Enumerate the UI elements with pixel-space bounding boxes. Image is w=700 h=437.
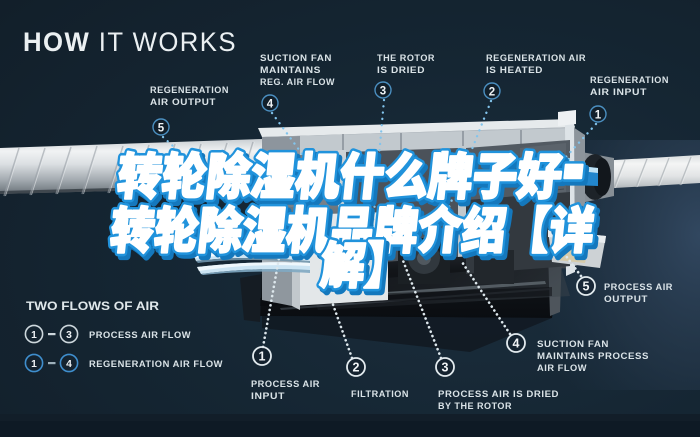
svg-text:3: 3 [442,361,449,375]
svg-text:3: 3 [380,86,386,98]
svg-text:4: 4 [66,359,72,370]
svg-text:BY THE ROTOR: BY THE ROTOR [438,401,512,412]
svg-text:5: 5 [583,280,590,294]
svg-text:1: 1 [595,110,602,122]
svg-text:PROCESS AIR: PROCESS AIR [604,282,673,293]
svg-text:FILTRATION: FILTRATION [351,389,409,400]
svg-text:HOW IT WORKS: HOW IT WORKS [23,27,237,57]
svg-text:REGENERATION: REGENERATION [150,85,229,96]
svg-text:IS DRIED: IS DRIED [377,65,425,76]
svg-text:3: 3 [66,330,72,341]
svg-text:SUCTION FAN: SUCTION FAN [537,339,609,350]
svg-text:4: 4 [513,337,520,351]
svg-text:4: 4 [267,99,274,111]
svg-text:REGENERATION AIR: REGENERATION AIR [486,53,586,64]
svg-text:OUTPUT: OUTPUT [604,294,648,305]
svg-text:TWO FLOWS OF AIR: TWO FLOWS OF AIR [26,300,160,313]
svg-text:AIR FLOW: AIR FLOW [537,363,587,374]
svg-text:INPUT: INPUT [251,391,285,402]
svg-text:2: 2 [353,361,360,375]
svg-text:AIR OUTPUT: AIR OUTPUT [150,97,216,108]
svg-text:PROCESS AIR: PROCESS AIR [251,379,320,390]
svg-text:5: 5 [158,123,165,135]
svg-text:2: 2 [489,87,495,99]
svg-text:AIR INPUT: AIR INPUT [590,87,647,98]
svg-text:REG. AIR FLOW: REG. AIR FLOW [260,77,335,88]
svg-text:1: 1 [31,330,37,341]
svg-text:REGENERATION AIR FLOW: REGENERATION AIR FLOW [89,359,223,370]
svg-text:MAINTAINS: MAINTAINS [260,65,321,76]
svg-text:1: 1 [31,359,37,370]
svg-text:PROCESS AIR FLOW: PROCESS AIR FLOW [89,330,191,341]
svg-text:1: 1 [259,350,266,364]
svg-text:SUCTION FAN: SUCTION FAN [260,53,332,64]
svg-text:MAINTAINS PROCESS: MAINTAINS PROCESS [537,351,649,362]
svg-text:THE ROTOR: THE ROTOR [377,53,435,64]
svg-text:PROCESS AIR IS DRIED: PROCESS AIR IS DRIED [438,389,559,400]
svg-text:IS HEATED: IS HEATED [486,65,543,76]
svg-text:REGENERATION: REGENERATION [590,75,669,86]
